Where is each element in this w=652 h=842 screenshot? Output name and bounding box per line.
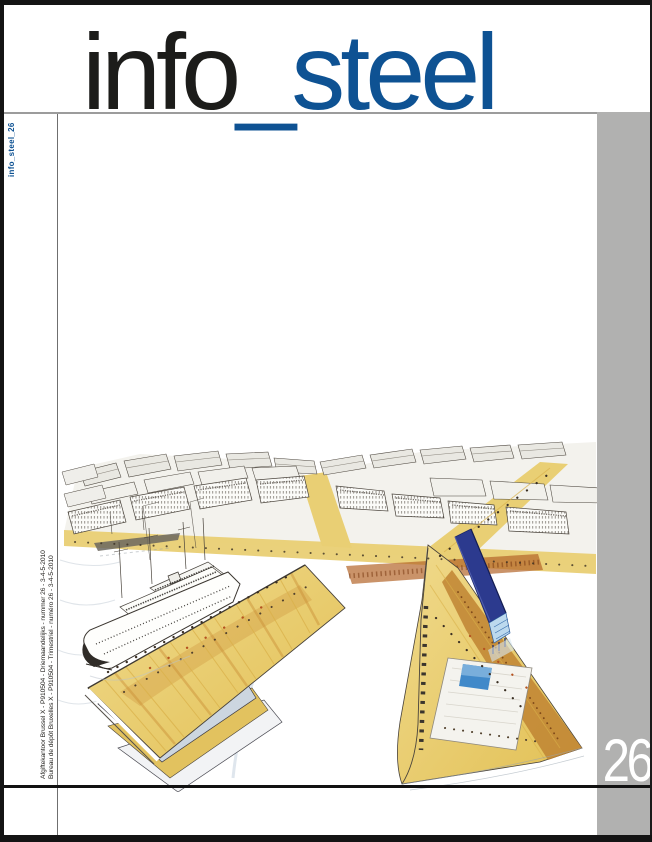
postal-imprint: Afgiftekantoor Brussel X - P910504 - Dri… xyxy=(40,550,57,779)
imprint-line-nl: Afgiftekantoor Brussel X - P910504 - Dri… xyxy=(40,550,48,779)
inner-vertical-rule xyxy=(57,112,58,836)
magazine-cover: info_steel 26 info_steel_26 Afgiftekanto… xyxy=(0,0,652,842)
imprint-line-fr: Bureau de dépôt Bruxelles X - P910504 - … xyxy=(48,550,56,779)
spine-edition-label: info_steel_26 xyxy=(7,122,16,177)
bottom-divider-line xyxy=(0,785,652,788)
magazine-title: info_steel xyxy=(82,18,494,126)
cover-illustration xyxy=(58,435,597,792)
frame-border-top xyxy=(0,0,652,5)
title-word-info: info xyxy=(82,11,236,132)
masthead-header: info_steel xyxy=(4,5,649,112)
title-word-steel: _steel xyxy=(236,11,494,132)
issue-number: 26 xyxy=(603,731,651,791)
frame-border-bottom xyxy=(0,835,652,842)
frame-border-left xyxy=(0,0,4,842)
